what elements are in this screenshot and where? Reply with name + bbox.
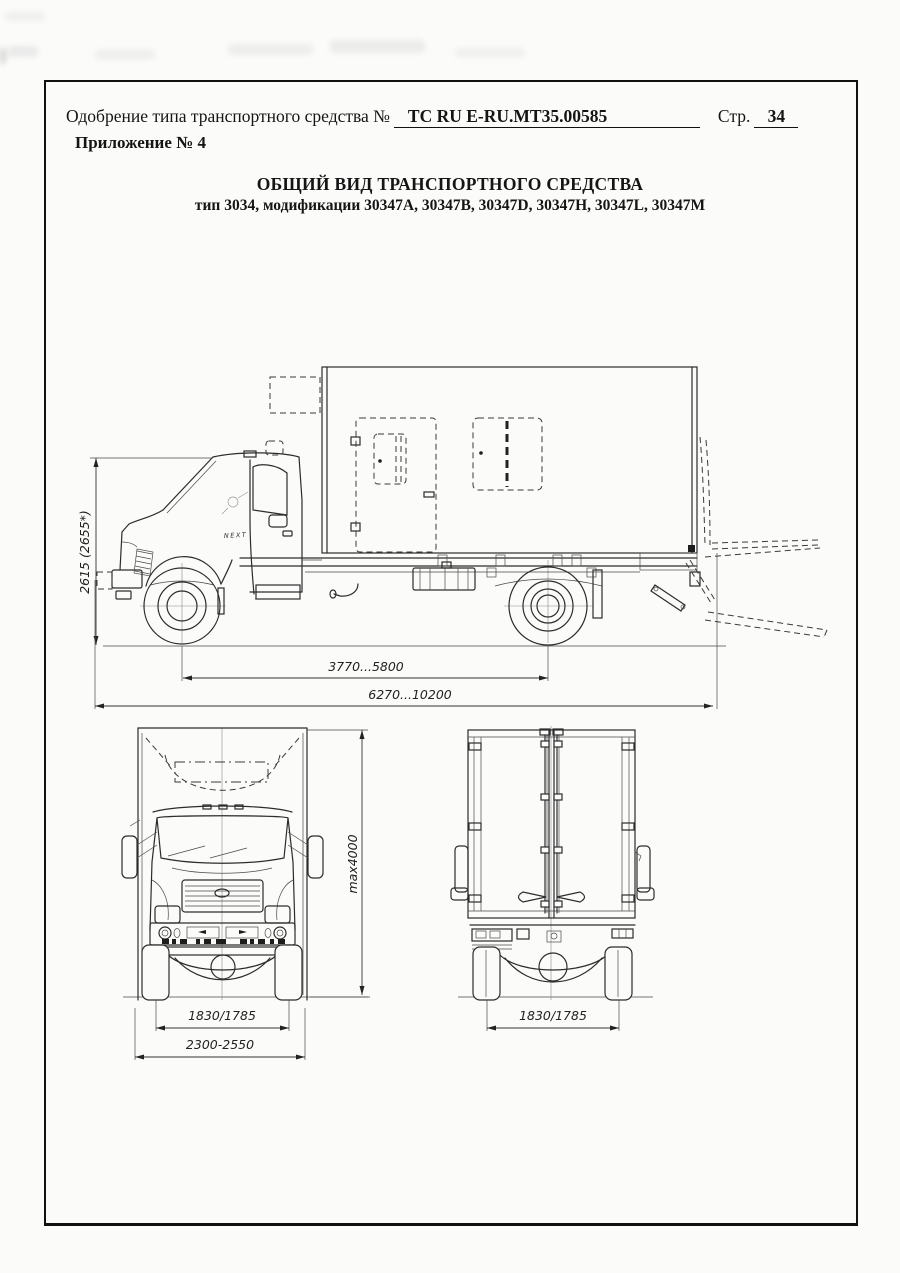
roof-unit-dashed [270, 377, 320, 413]
front-vent-dashes [162, 939, 285, 944]
front-suspension [168, 955, 277, 980]
dim-track-front: 1830/1785 [188, 1008, 256, 1023]
dim-length: 6270...10200 [368, 687, 452, 702]
front-wheel-left [142, 945, 169, 1000]
cab-badge: NEXT [224, 531, 248, 540]
front-cab [122, 805, 323, 1000]
document-page: Одобрение типа транспортного средства № … [0, 0, 900, 1273]
rear-underbody [470, 925, 635, 1000]
front-grille [182, 880, 263, 912]
dim-height-side: 2615 (2655*) [77, 510, 92, 594]
dim-track-rear: 1830/1785 [519, 1008, 587, 1023]
rear-door-handles [519, 892, 585, 902]
vehicle-drawing: NEXT [0, 0, 900, 1273]
dim-wheelbase: 3770...5800 [328, 659, 404, 674]
side-view: NEXT [77, 367, 827, 709]
side-van-body [270, 367, 697, 553]
rear-view: 1830/1785 [451, 726, 654, 1031]
dim-height-front: max4000 [345, 834, 360, 893]
front-view: max4000 1830/1785 2300-2550 [122, 728, 370, 1060]
roof-sign-dashed [175, 762, 268, 782]
rear-door-hinges [469, 743, 641, 902]
side-door-dashed [351, 418, 436, 552]
mirror [269, 515, 287, 527]
rear-wheel-left [473, 947, 500, 1000]
side-cab: NEXT [97, 441, 322, 599]
tail-lift-dashed [686, 437, 827, 637]
headlight-right [265, 906, 290, 923]
rear-box [468, 729, 641, 918]
rear-door-lock-rods [540, 729, 563, 913]
door-handle [283, 531, 292, 536]
front-dimensions: max4000 1830/1785 2300-2550 [135, 730, 368, 1060]
rear-side-flaps [451, 846, 654, 900]
front-wheel-right [275, 945, 302, 1000]
tow-hook-dashed [97, 572, 112, 589]
rear-wheel-right [605, 947, 632, 1000]
headlight-left [155, 906, 180, 923]
dim-width-front: 2300-2550 [186, 1037, 254, 1052]
rear-dimensions: 1830/1785 [487, 1000, 619, 1031]
exhaust-pipe [334, 584, 358, 596]
roof-lamp [244, 451, 256, 457]
front-tarp-dashed [146, 738, 299, 790]
side-hatch-dashed [473, 418, 542, 490]
